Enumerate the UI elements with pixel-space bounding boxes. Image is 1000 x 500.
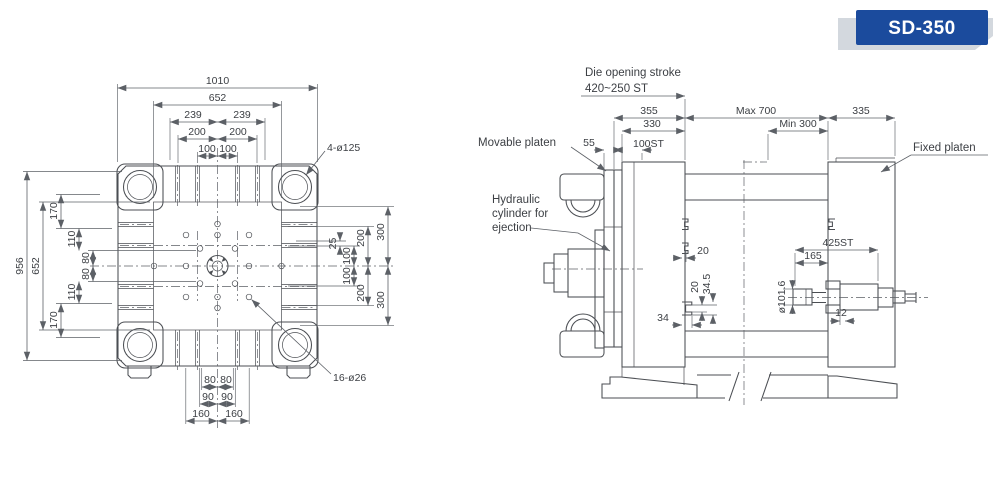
side-top-dimensions: Die opening stroke 420~250 ST 355 Max 70…	[581, 67, 895, 169]
technical-drawing-page: 1010 652 239 239 200 200 100 100 956 65	[0, 0, 1000, 500]
dim-90-bl: 90	[202, 391, 214, 403]
fixed-platen-assembly	[828, 158, 897, 398]
dim-110-bottom: 110	[66, 283, 78, 300]
dim-160-br: 160	[225, 408, 243, 420]
movable-platen-body	[622, 162, 685, 367]
fixed-platen-label: Fixed platen	[913, 142, 976, 154]
dim-20-face: 20	[697, 245, 709, 257]
callout-mounting-holes: 16-ø26	[333, 372, 366, 384]
dim-110-top: 110	[66, 230, 78, 247]
tie-bars	[560, 174, 828, 357]
dim-34-5: 34.5	[701, 274, 713, 295]
dim-239-left: 239	[184, 109, 202, 121]
dim-100-left: 100	[198, 143, 216, 155]
fixed-platen-foot	[828, 376, 897, 398]
dim-100-upper: 100	[341, 247, 353, 265]
dim-300-lower: 300	[375, 291, 387, 309]
plunger-coupling	[793, 289, 812, 305]
model-number: SD-350	[888, 18, 955, 39]
side-view: Die opening stroke 420~250 ST 355 Max 70…	[478, 67, 988, 405]
dim-200-right: 200	[229, 126, 247, 138]
dim-300-upper: 300	[375, 223, 387, 241]
machine-base-rails	[697, 372, 828, 401]
dim-80-bottom: 80	[80, 268, 92, 280]
side-centerlines	[552, 160, 928, 405]
dim-overall-height: 956	[14, 257, 26, 275]
dim-200-lower: 200	[355, 284, 367, 302]
dim-100-right: 100	[219, 143, 237, 155]
dim-overall-width: 1010	[206, 75, 230, 87]
hydraulic-label-line1: Hydraulic	[492, 194, 540, 206]
dim-min-300: Min 300	[779, 118, 817, 130]
side-slot-dimensions: 20 20 34.5 34	[657, 245, 717, 328]
dim-170-bottom: 170	[48, 311, 60, 329]
movable-platen-assembly	[544, 162, 828, 398]
front-left-dimensions: 956 652 170 110 80 80 110 170	[14, 172, 196, 361]
dim-80-bl: 80	[204, 374, 216, 386]
die-opening-stroke-value: 420~250 ST	[585, 83, 648, 95]
dim-20-depth: 20	[689, 281, 701, 293]
dim-80-br: 80	[220, 374, 232, 386]
die-opening-stroke-label: Die opening stroke	[585, 67, 681, 79]
dim-25-offset: 25	[327, 238, 339, 250]
dim-165: 165	[804, 250, 822, 262]
die-casting-machine-drawing: 1010 652 239 239 200 200 100 100 956 65	[0, 0, 1000, 500]
dim-239-right: 239	[233, 109, 251, 121]
dim-face-width: 652	[209, 92, 227, 104]
injection-unit	[793, 281, 916, 313]
dim-355: 355	[640, 105, 658, 117]
dim-200-upper: 200	[355, 229, 367, 247]
hydraulic-label-line3: ejection	[492, 222, 532, 234]
fixed-platen-body	[828, 162, 895, 367]
movable-platen-label: Movable platen	[478, 137, 556, 149]
callout-tie-bar-holes: 4-ø125	[327, 142, 360, 154]
front-view: 1010 652 239 239 200 200 100 100 956 65	[14, 75, 395, 428]
dim-80-top: 80	[80, 252, 92, 264]
front-top-dimensions: 1010 652 239 239 200 200 100 100	[118, 75, 318, 198]
dim-100st: 100ST	[633, 138, 665, 150]
dim-34: 34	[657, 312, 669, 324]
fixed-ejector-slot	[829, 219, 835, 230]
sprue-slot	[682, 302, 692, 315]
hydraulic-label-line2: cylinder for	[492, 208, 548, 220]
model-badge: SD-350	[838, 10, 993, 50]
movable-platen-foot	[602, 377, 697, 398]
dim-face-height: 652	[30, 257, 42, 275]
dim-100-lower: 100	[341, 267, 353, 285]
side-labels: Movable platen Hydraulic cylinder for ej…	[478, 137, 988, 251]
dim-330: 330	[643, 118, 661, 130]
dim-12: 12	[835, 307, 847, 319]
dim-plunger-dia: ø101.6	[776, 281, 788, 314]
front-centerlines	[90, 148, 395, 428]
dim-55: 55	[583, 137, 595, 149]
dim-160-bl: 160	[192, 408, 210, 420]
dim-425st: 425ST	[823, 237, 855, 249]
dim-200-left: 200	[188, 126, 206, 138]
dim-90-br: 90	[221, 391, 233, 403]
dim-335: 335	[852, 105, 870, 117]
dim-max-700: Max 700	[736, 105, 776, 117]
dim-170-top: 170	[48, 202, 60, 220]
